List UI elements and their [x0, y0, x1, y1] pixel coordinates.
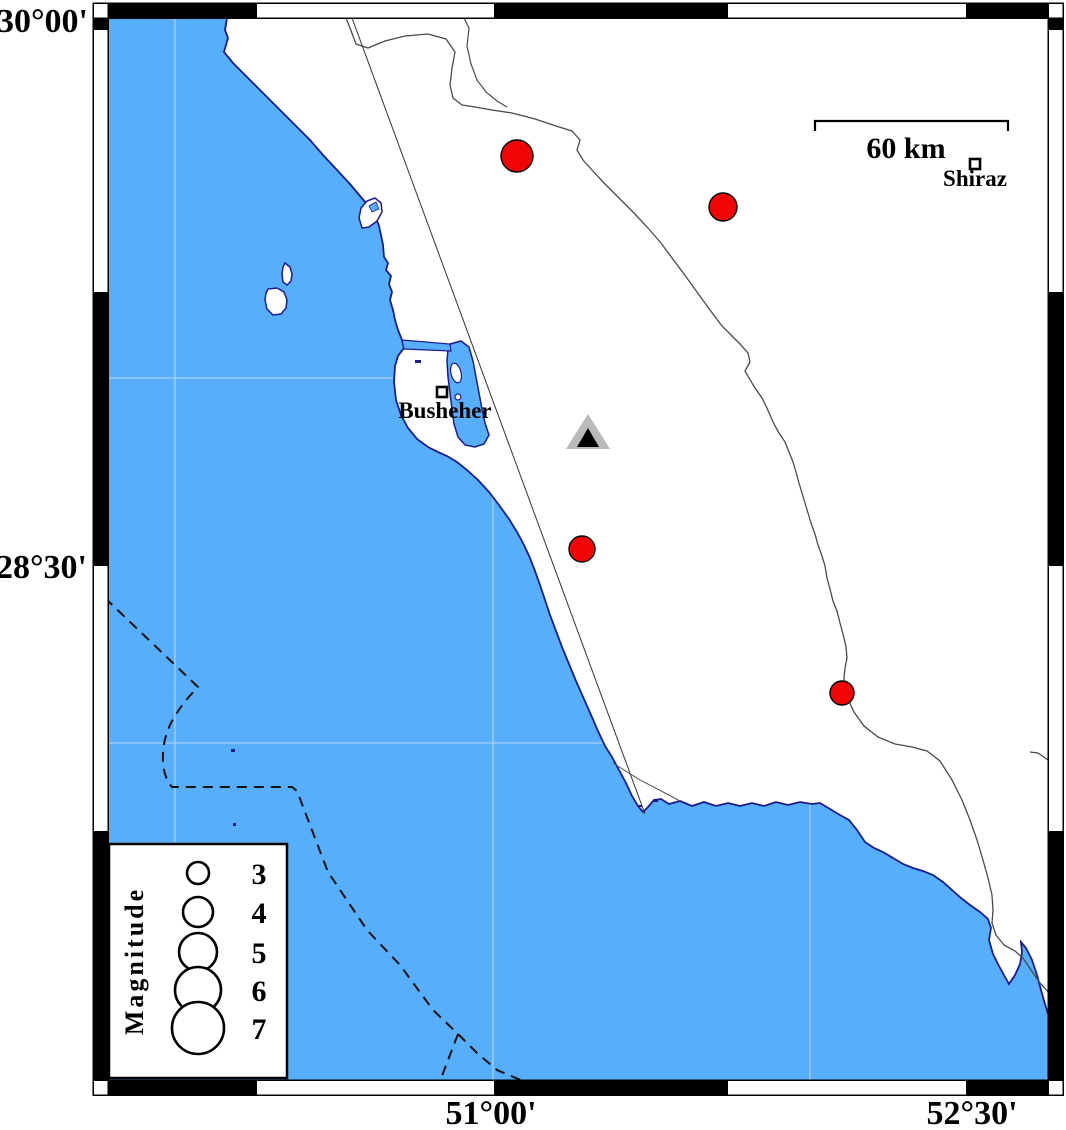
magnitude-legend: Magnitude 34567: [109, 844, 287, 1078]
lon-label-52-30: 52°30': [926, 1095, 1017, 1130]
epicenter-circle: [830, 681, 854, 705]
kharg-island: [265, 288, 287, 315]
lon-label-51-00: 51°00': [445, 1095, 536, 1130]
city-marker-busheher: [437, 387, 447, 397]
epicenter-circle: [569, 536, 595, 562]
seismicity-map-page: BusheherShiraz 60 km Magnitude 34567 30°…: [0, 0, 1066, 1130]
city-label-shiraz: Shiraz: [943, 166, 1007, 191]
lat-label-28-30: 28°30': [0, 549, 87, 586]
legend-circle-m7: [172, 1002, 224, 1054]
legend-value-m4: 4: [252, 897, 267, 930]
legend-value-m6: 6: [252, 975, 267, 1008]
city-label-busheher: Busheher: [398, 398, 491, 423]
lat-label-30-00: 30°00': [0, 3, 88, 40]
legend-value-m7: 7: [252, 1013, 267, 1046]
legend-value-m3: 3: [252, 858, 267, 891]
map-canvas: BusheherShiraz 60 km Magnitude 34567 30°…: [0, 0, 1066, 1130]
map-interior: BusheherShiraz 60 km Magnitude 34567: [105, 18, 1052, 1081]
legend-circle-m4: [183, 897, 213, 927]
legend-circle-m5: [179, 933, 217, 971]
legend-title: Magnitude: [120, 887, 149, 1035]
epicenter-circle: [501, 140, 533, 172]
epicenter-circle: [709, 193, 737, 221]
legend-circle-m3: [187, 862, 209, 884]
legend-value-m5: 5: [252, 937, 267, 970]
scale-bar-label: 60 km: [866, 132, 945, 165]
